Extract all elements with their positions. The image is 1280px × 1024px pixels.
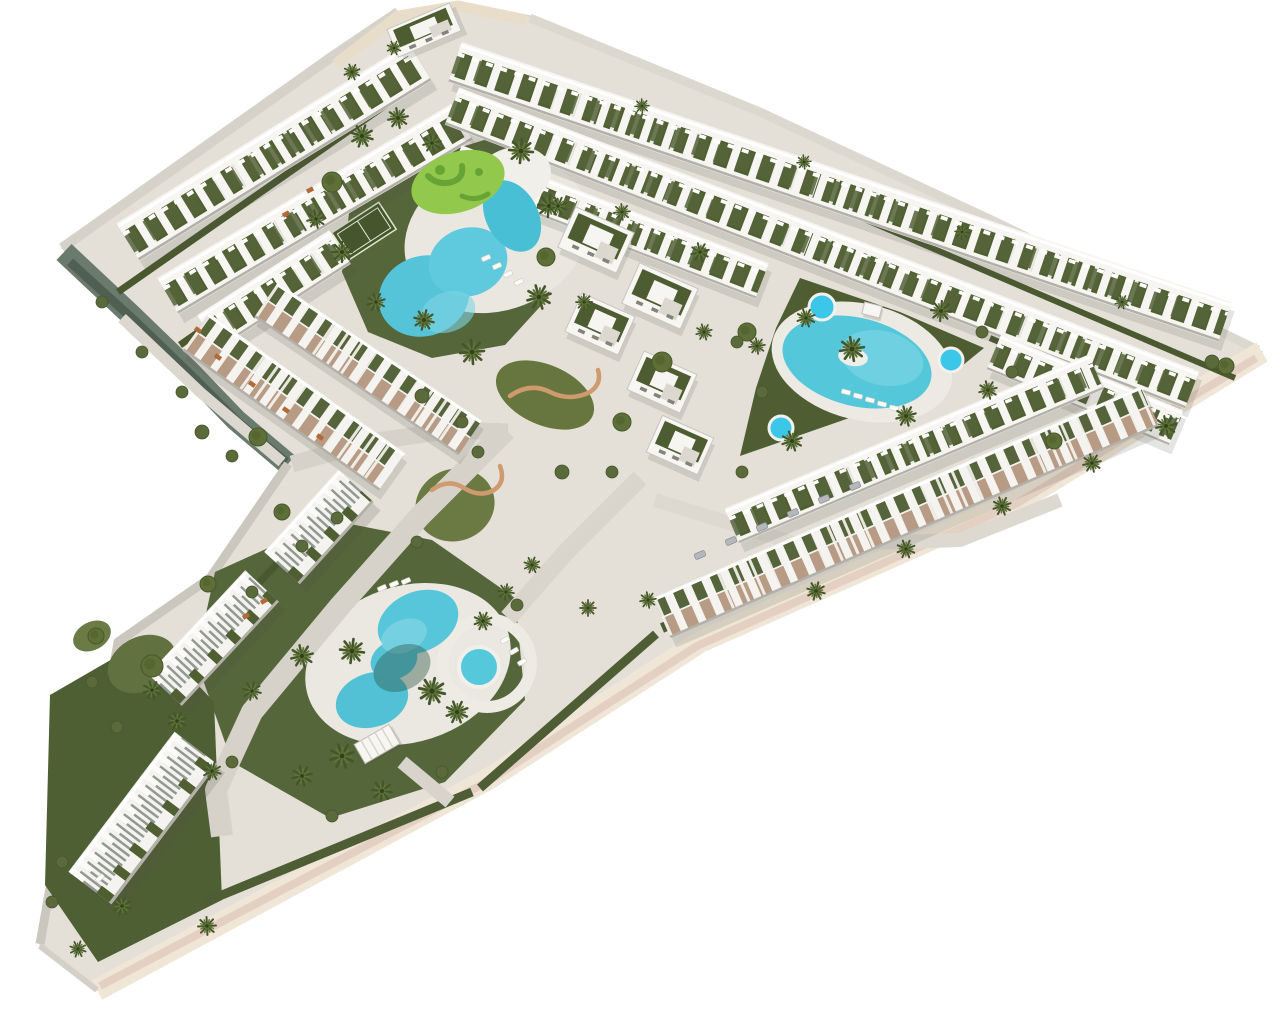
palm-crown (504, 590, 507, 593)
palm-crown (986, 388, 990, 392)
palm-crown (1164, 424, 1168, 428)
palm-tree (614, 204, 630, 220)
bush (331, 512, 343, 524)
bush (111, 721, 123, 733)
bush (56, 856, 68, 868)
tree-canopy-core (276, 506, 284, 514)
bush (326, 810, 338, 822)
palm-crown (620, 210, 623, 213)
palm-tree (332, 242, 352, 262)
palm-tree (576, 294, 592, 310)
palm-crown (790, 439, 794, 443)
garden-tree (322, 172, 342, 192)
palm-crown (350, 70, 353, 73)
tree-canopy-core (655, 355, 665, 365)
palm-crown (175, 719, 179, 723)
palm-crown (210, 769, 214, 773)
bush (86, 676, 98, 688)
garden-tree (652, 352, 672, 372)
bush (226, 450, 238, 462)
bush (296, 540, 308, 552)
bush (436, 766, 448, 778)
island-dot-1 (435, 165, 445, 175)
bush (246, 586, 258, 598)
tree-canopy-core (616, 416, 625, 425)
bush (1205, 355, 1219, 369)
palm-crown (380, 789, 384, 793)
palm-crown (814, 589, 818, 593)
bush (415, 389, 429, 403)
palm-tree (635, 99, 649, 113)
palm-crown (396, 116, 400, 120)
palm-crown (422, 318, 426, 322)
palm-crown (76, 947, 79, 950)
palm-crown (1121, 301, 1124, 304)
tree-canopy-core (1220, 360, 1228, 368)
bush (411, 536, 423, 548)
palm-crown (150, 688, 154, 692)
palm-crown (350, 649, 355, 654)
palm-crown (939, 309, 943, 313)
palm-crown (455, 710, 459, 714)
bush (195, 425, 209, 439)
bush (511, 599, 523, 611)
palm-crown (556, 204, 560, 208)
tree-canopy-core (1048, 435, 1056, 443)
palm-crown (646, 598, 649, 601)
palm-crown (470, 350, 475, 355)
palm-crown (519, 149, 524, 154)
palm-crown (120, 904, 124, 908)
palm-crown (702, 330, 705, 333)
tree-canopy-core (325, 175, 335, 185)
bush (731, 336, 743, 348)
garden-tree (1218, 358, 1234, 374)
palm-crown (393, 47, 396, 50)
bush (472, 446, 484, 458)
palm-crown (530, 563, 533, 566)
palm-crown (481, 619, 485, 623)
palm-crown (300, 654, 304, 658)
bush (606, 466, 618, 478)
palm-tree (198, 917, 216, 935)
palm-crown (314, 217, 318, 221)
palm-crown (250, 689, 254, 693)
garden-tree (613, 413, 631, 431)
palm-crown (300, 774, 304, 778)
tree-canopy-core (144, 658, 155, 669)
palm-crown (1090, 461, 1094, 465)
bush (976, 326, 988, 338)
tree-canopy-core (540, 251, 549, 260)
bush (226, 756, 238, 768)
palm-crown (961, 231, 964, 234)
bush (1006, 366, 1018, 378)
palm-tree (509, 139, 533, 163)
palm-crown (641, 105, 644, 108)
bush (736, 466, 748, 478)
garden-tree (200, 576, 216, 592)
palm-crown (429, 688, 434, 693)
palm-crown (547, 204, 551, 208)
bottom-round-pool (459, 647, 499, 687)
bush (176, 386, 188, 398)
palm-tree (931, 301, 951, 321)
architectural-render-page (0, 0, 1280, 1024)
bush (456, 416, 468, 428)
site-plan-render (0, 0, 1280, 1024)
palm-crown (586, 606, 589, 609)
bush (756, 386, 768, 398)
palm-crown (904, 414, 908, 418)
palm-tree (797, 155, 811, 169)
bush (136, 346, 148, 358)
tree-canopy-core (741, 326, 750, 335)
palm-crown (904, 547, 908, 551)
garden-tree (249, 428, 267, 446)
palm-crown (340, 250, 344, 254)
palm-crown (360, 134, 364, 138)
garden-tree (537, 248, 555, 266)
palm-tree (580, 600, 596, 616)
palm-crown (1000, 504, 1004, 508)
palm-crown (340, 754, 345, 759)
tree-canopy-core (202, 578, 210, 586)
garden-tree (274, 504, 290, 520)
palm-crown (374, 300, 378, 304)
garden-tree (1046, 433, 1062, 449)
palm-tree (955, 225, 969, 239)
palm-crown (205, 924, 209, 928)
palm-crown (430, 141, 434, 145)
garden-tree (141, 655, 163, 677)
palm-crown (698, 250, 702, 254)
bush (555, 465, 569, 479)
bush (96, 296, 108, 308)
palm-crown (755, 344, 758, 347)
island-dot-2 (475, 168, 483, 176)
palm-crown (804, 316, 808, 320)
tree-canopy-core (90, 630, 98, 638)
spa-pool-2 (939, 348, 963, 372)
palm-crown (537, 295, 542, 300)
palm-crown (803, 161, 806, 164)
tree-canopy-core (252, 431, 261, 440)
garden-tree (88, 628, 104, 644)
palm-tree (460, 340, 484, 364)
palm-crown (582, 300, 585, 303)
palm-crown (850, 347, 855, 352)
bush (46, 896, 58, 908)
